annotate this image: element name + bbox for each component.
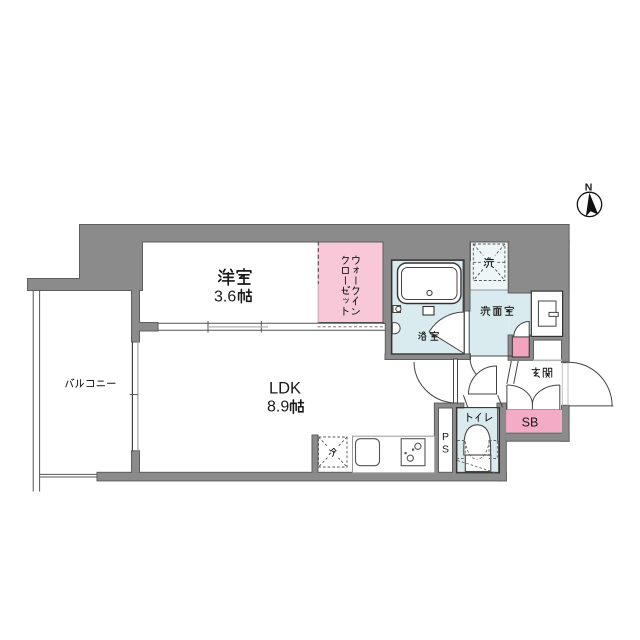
svg-text:P: P bbox=[442, 431, 449, 443]
svg-text:S: S bbox=[442, 443, 449, 455]
svg-text:3.6: 3.6 bbox=[214, 289, 236, 306]
svg-text:8.9: 8.9 bbox=[267, 399, 289, 416]
svg-text:SB: SB bbox=[522, 415, 539, 429]
svg-text:N: N bbox=[585, 182, 593, 194]
svg-text:LDK: LDK bbox=[269, 380, 301, 398]
